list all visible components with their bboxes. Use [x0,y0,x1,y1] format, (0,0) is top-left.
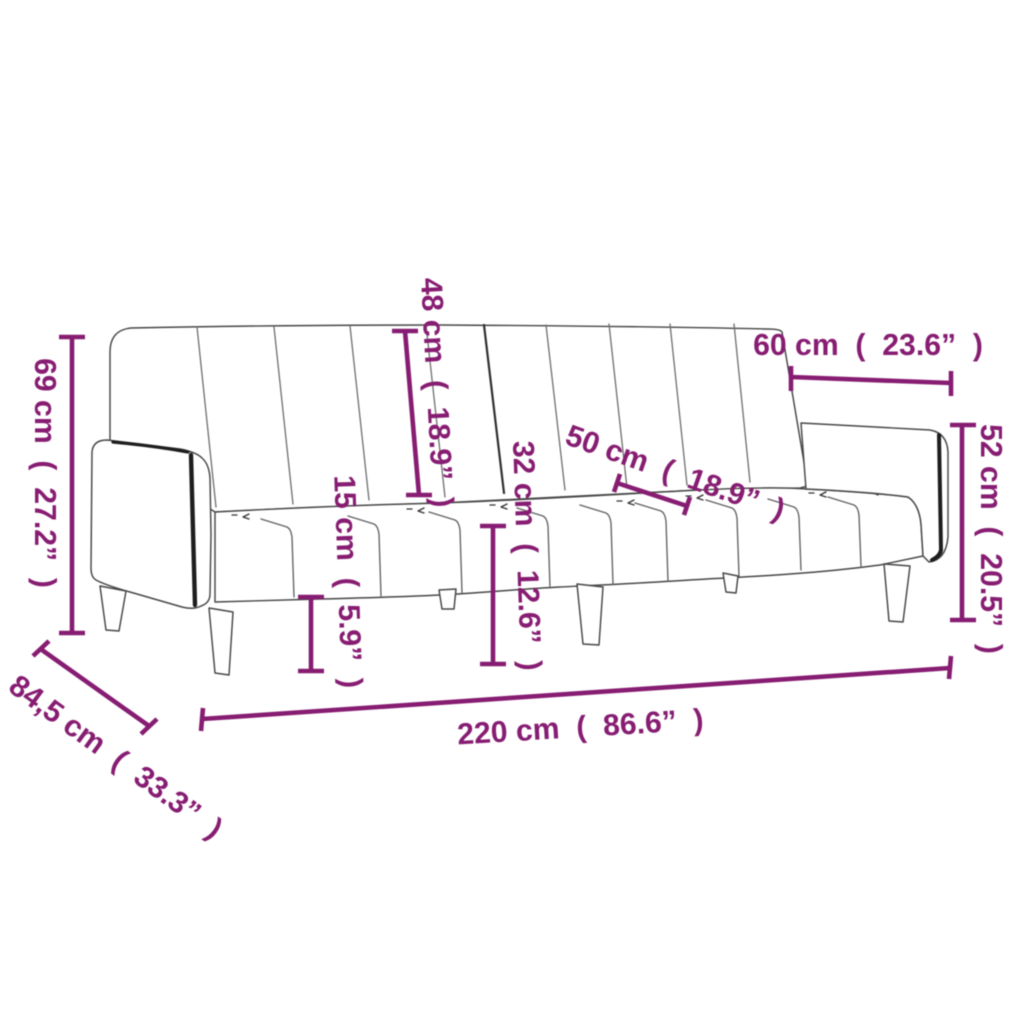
svg-text:60 cm ( 23.6” ): 60 cm ( 23.6” ) [753,329,983,362]
svg-text:52 cm ( 20.5” ): 52 cm ( 20.5” ) [974,424,1007,654]
svg-text:69 cm ( 27.2” ): 69 cm ( 27.2” ) [28,358,61,588]
